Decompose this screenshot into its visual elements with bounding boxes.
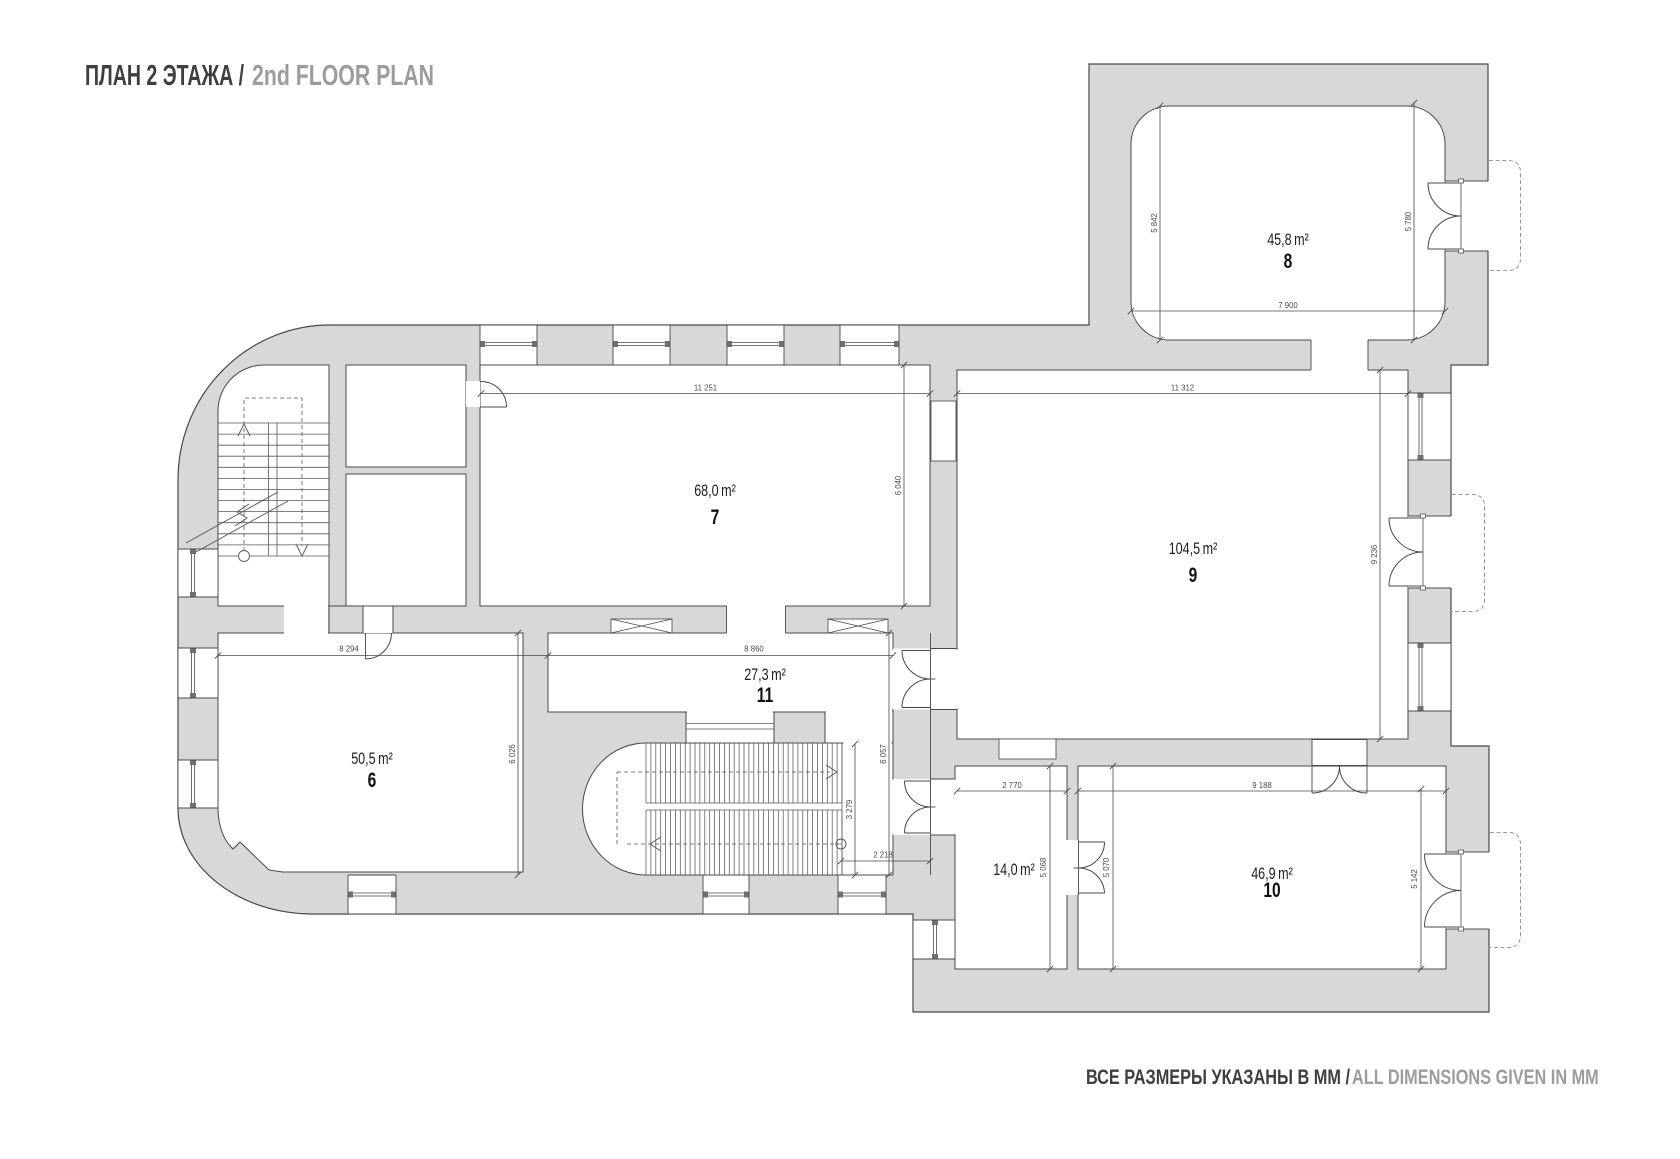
svg-text:9 188: 9 188 <box>1252 781 1272 790</box>
svg-text:45,8 m²: 45,8 m² <box>1267 230 1309 249</box>
svg-text:7: 7 <box>711 505 720 529</box>
svg-text:68,0 m²: 68,0 m² <box>694 481 736 500</box>
svg-text:104,5 m²: 104,5 m² <box>1169 539 1218 558</box>
svg-text:14,0 m²: 14,0 m² <box>993 860 1035 879</box>
svg-text:5 780: 5 780 <box>1404 211 1413 231</box>
svg-text:7 900: 7 900 <box>1278 301 1298 310</box>
svg-text:5 842: 5 842 <box>1150 213 1159 233</box>
svg-text:10: 10 <box>1263 878 1280 902</box>
svg-text:9: 9 <box>1189 563 1198 587</box>
svg-text:9 236: 9 236 <box>1370 545 1379 565</box>
svg-text:11: 11 <box>757 683 773 707</box>
svg-text:5 068: 5 068 <box>1039 858 1048 878</box>
svg-text:2nd FLOOR PLAN: 2nd FLOOR PLAN <box>252 60 434 92</box>
svg-text:11 251: 11 251 <box>694 384 717 393</box>
svg-text:5 070: 5 070 <box>1102 857 1111 877</box>
svg-text:5 142: 5 142 <box>1410 869 1419 889</box>
svg-text:6 026: 6 026 <box>508 744 517 764</box>
svg-text:6 040: 6 040 <box>894 475 903 495</box>
svg-text:11 312: 11 312 <box>1171 384 1194 393</box>
svg-text:2 770: 2 770 <box>1002 781 1022 790</box>
svg-text:6 057: 6 057 <box>879 744 888 764</box>
svg-text:6: 6 <box>368 768 377 792</box>
svg-text:3 279: 3 279 <box>845 800 854 820</box>
svg-text:2 218: 2 218 <box>873 851 893 860</box>
svg-text:50,5 m²: 50,5 m² <box>351 749 393 768</box>
svg-text:ALL DIMENSIONS GIVEN IN MM: ALL DIMENSIONS GIVEN IN MM <box>1352 1065 1599 1089</box>
svg-text:ВСЕ РАЗМЕРЫ УКАЗАНЫ В ММ /: ВСЕ РАЗМЕРЫ УКАЗАНЫ В ММ / <box>1086 1065 1350 1089</box>
svg-text:ПЛАН 2 ЭТАЖА /: ПЛАН 2 ЭТАЖА / <box>85 60 244 92</box>
svg-text:8 294: 8 294 <box>339 645 359 654</box>
svg-text:8 860: 8 860 <box>744 645 764 654</box>
svg-text:8: 8 <box>1284 249 1293 273</box>
svg-text:27,3 m²: 27,3 m² <box>744 665 786 684</box>
